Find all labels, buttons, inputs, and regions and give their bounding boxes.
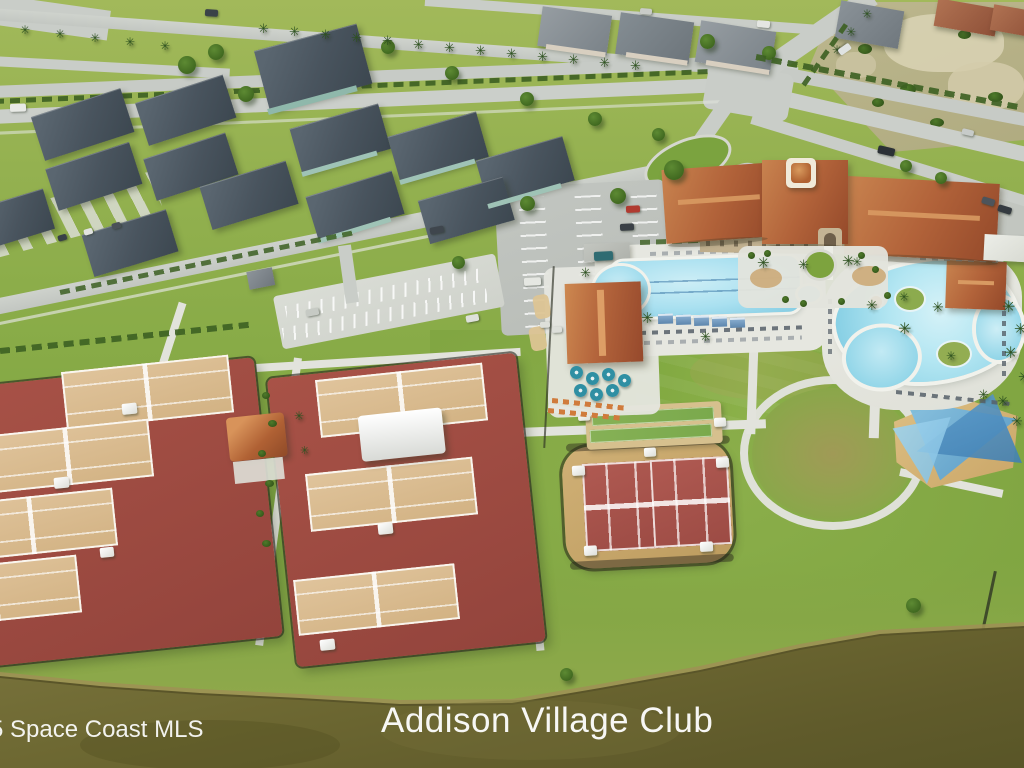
- palm-tree: ✳: [20, 24, 30, 36]
- fence-shrub: [262, 392, 270, 399]
- palm-tree: ✳: [898, 322, 911, 338]
- car: [594, 251, 613, 261]
- palm-tree: ✳: [382, 34, 393, 47]
- shade-canopy: [644, 447, 656, 457]
- lawn-tree: [900, 160, 912, 172]
- shore-tree: [906, 598, 921, 613]
- courtyard-planter: [806, 252, 834, 278]
- shade-canopy: [716, 457, 730, 468]
- fence-shrub: [256, 510, 264, 517]
- car: [205, 9, 218, 17]
- lawn-tree: [452, 256, 465, 269]
- scrub-bush: [858, 44, 872, 54]
- lawn-tree: [520, 196, 535, 211]
- shade-canopy: [121, 402, 137, 415]
- palm-tree: ✳: [846, 26, 856, 38]
- street-tree: [445, 66, 459, 80]
- palm-tree: ✳: [641, 311, 654, 326]
- palm-tree: ✳: [90, 32, 100, 44]
- shade-canopy: [584, 545, 598, 556]
- palm-tree: ✳: [946, 350, 956, 362]
- palm-tree: ✳: [1004, 346, 1017, 362]
- street-tree: [178, 56, 196, 74]
- fence-shrub: [258, 450, 266, 457]
- shrub-ball: [884, 292, 891, 299]
- palm-tree: ✳: [599, 56, 610, 69]
- palm-tree: ✳: [125, 36, 135, 48]
- palm-tree: ✳: [997, 394, 1009, 408]
- shrub-ball: [748, 252, 755, 259]
- car: [640, 8, 652, 15]
- shade-canopy: [319, 638, 335, 651]
- car: [757, 20, 771, 28]
- palm-tree: ✳: [630, 59, 641, 72]
- palm-tree: ✳: [506, 47, 517, 60]
- shrub-ball: [782, 296, 789, 303]
- resort-cabana-roof: [945, 260, 1007, 310]
- palm-tree: ✳: [932, 300, 944, 314]
- lounge-chairs: [1002, 310, 1006, 376]
- palm-tree: ✳: [862, 8, 872, 20]
- fence-shrub: [262, 540, 271, 547]
- palm-tree: ✳: [258, 22, 269, 35]
- patio-umbrella: [618, 374, 631, 387]
- shade-canopy: [572, 465, 586, 476]
- palm-tree: ✳: [1014, 322, 1024, 337]
- palm-tree: ✳: [866, 298, 878, 312]
- lawn-tree: [935, 172, 947, 184]
- shade-canopy: [700, 541, 714, 552]
- street-tree: [238, 86, 254, 102]
- palm-tree: ✳: [852, 256, 862, 268]
- cabana: [712, 316, 727, 327]
- patio-umbrella: [590, 388, 603, 401]
- gazebo-roof: [226, 412, 288, 462]
- street-tree: [588, 112, 602, 126]
- palm-tree: ✳: [1011, 414, 1023, 428]
- palm-tree: ✳: [700, 330, 711, 343]
- palm-tree: ✳: [300, 446, 309, 457]
- cabana: [676, 314, 691, 325]
- shore-tree: [560, 668, 573, 681]
- palm-tree: ✳: [978, 388, 989, 401]
- street-tree: [208, 44, 224, 60]
- patio-umbrella: [606, 384, 619, 397]
- car: [626, 205, 640, 213]
- restroom-building-east: [983, 234, 1024, 262]
- fence-shrub: [265, 480, 274, 487]
- palm-tree: ✳: [757, 256, 770, 271]
- patio-umbrella: [570, 366, 583, 379]
- shrub-ball: [800, 300, 807, 307]
- entry-tree: [610, 188, 626, 204]
- street-tree: [700, 34, 715, 49]
- bleacher-tent: [358, 407, 446, 462]
- palm-tree: ✳: [294, 410, 304, 422]
- palm-tree: ✳: [1018, 370, 1024, 385]
- palm-tree: ✳: [351, 31, 362, 44]
- club-cupola-roof: [791, 163, 811, 183]
- cabana: [658, 313, 673, 324]
- car: [540, 321, 550, 328]
- shrub-ball: [872, 266, 879, 273]
- palm-tree: ✳: [568, 53, 579, 66]
- palm-tree: ✳: [160, 40, 170, 52]
- palm-tree: ✳: [320, 28, 331, 41]
- palm-tree: ✳: [289, 25, 300, 38]
- shade-canopy: [714, 417, 726, 427]
- palm-tree: ✳: [537, 50, 548, 63]
- palm-tree: ✳: [798, 258, 809, 271]
- patio-umbrella: [586, 372, 599, 385]
- palm-tree: ✳: [475, 44, 486, 57]
- car: [10, 103, 26, 112]
- aerial-photo-addison-village-club: ✳✳✳✳✳✳✳✳✳✳✳✳✳✳✳✳✳✳✳✳✳✳✳✳✳✳✳✳✳✳✳✳✳✳✳✳✳✳✳✳…: [0, 0, 1024, 768]
- watermark-mls: 5 Space Coast MLS: [0, 716, 203, 744]
- palm-tree: ✳: [413, 38, 424, 51]
- street-tree: [520, 92, 534, 106]
- car: [524, 277, 541, 286]
- palm-tree: ✳: [55, 28, 65, 40]
- car: [620, 223, 634, 231]
- shrub-ball: [838, 298, 845, 305]
- shade-canopy: [377, 522, 393, 535]
- watermark-title: Addison Village Club: [381, 701, 713, 741]
- shade-canopy: [53, 476, 69, 489]
- street-tree: [652, 128, 665, 141]
- pickleball-court: [650, 456, 732, 548]
- patio-umbrella: [602, 368, 615, 381]
- mulch-bed: [852, 266, 886, 286]
- entry-tree: [664, 160, 684, 180]
- patio-umbrella: [574, 384, 587, 397]
- palm-tree: ✳: [444, 41, 455, 54]
- car: [552, 326, 562, 333]
- fence-shrub: [268, 420, 277, 427]
- shade-canopy: [99, 547, 114, 558]
- palm-tree: ✳: [899, 291, 909, 303]
- cabana: [694, 315, 709, 326]
- scrub-bush: [872, 98, 884, 107]
- palm-tree: ✳: [580, 266, 591, 279]
- palm-tree: ✳: [1002, 300, 1015, 316]
